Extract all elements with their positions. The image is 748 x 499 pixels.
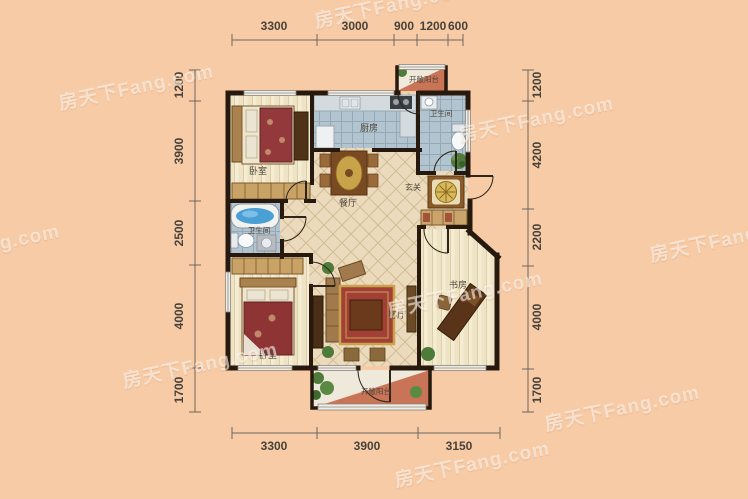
floor-plan: 3300 3000 900 1200 600 3300 3900 3150 12…	[0, 0, 748, 499]
plant	[451, 153, 467, 169]
washbasin	[421, 96, 437, 109]
foyer-medallion	[428, 176, 464, 208]
dim-bottom-3: 3150	[446, 439, 473, 453]
dim-top-5: 600	[448, 19, 468, 33]
room-label-balcony-top: 开敞阳台	[409, 74, 439, 84]
dim-left-1: 1200	[172, 71, 186, 98]
stove	[390, 96, 412, 109]
dim-top-3: 900	[394, 19, 414, 33]
bed	[232, 106, 294, 164]
balcony-railing	[399, 65, 445, 70]
dim-left-3: 2500	[172, 219, 186, 246]
dim-top-1: 3300	[261, 19, 288, 33]
dim-right-3: 2200	[530, 223, 544, 250]
coffee-table	[350, 300, 382, 330]
room-label-kitchen: 厨房	[360, 122, 378, 133]
toilet	[231, 233, 254, 248]
dim-right-5: 1700	[530, 376, 544, 403]
room-label-foyer: 玄关	[405, 182, 421, 192]
window	[318, 366, 356, 371]
room-label-bedroom-top: 卧室	[249, 165, 267, 176]
room-label-living: 客厅	[388, 309, 406, 320]
room-label-bathroom-mid: 卫生间	[248, 225, 271, 235]
dimension-chain-right: 1200 4200 2200 4000 1700	[522, 70, 544, 412]
window	[238, 366, 292, 371]
dim-left-2: 3900	[172, 137, 186, 164]
window	[328, 91, 394, 96]
dim-right-1: 1200	[530, 71, 544, 98]
fridge	[316, 126, 334, 148]
floorplan-page: 3300 3000 900 1200 600 3300 3900 3150 12…	[0, 0, 748, 499]
tall-cabinet	[294, 112, 308, 160]
bathtub	[231, 204, 279, 228]
balcony-railing	[318, 404, 426, 410]
room-label-bathroom-top: 卫生间	[430, 108, 453, 118]
window	[466, 110, 471, 152]
side-shelf	[407, 286, 416, 332]
window	[226, 272, 231, 312]
dim-left-4: 4000	[172, 302, 186, 329]
room-label-bedroom-bottom: 卧室	[259, 349, 277, 360]
dim-top-2: 3000	[342, 19, 369, 33]
shower-unit	[257, 235, 276, 251]
dim-right-2: 4200	[530, 141, 544, 168]
room-label-balcony-bottom: 开敞阳台	[361, 386, 391, 396]
dim-bottom-1: 3300	[261, 439, 288, 453]
tv-cabinet	[313, 296, 323, 348]
dim-left-5: 1700	[172, 376, 186, 403]
toilet	[452, 124, 466, 150]
sink	[340, 97, 360, 109]
entry-door	[470, 176, 493, 199]
dim-right-4: 4000	[530, 303, 544, 330]
hall-closet	[421, 210, 467, 225]
window	[434, 366, 486, 371]
dimension-chain-bottom: 3300 3900 3150	[232, 427, 500, 453]
dim-bottom-2: 3900	[354, 439, 381, 453]
dimension-chain-left: 1200 3900 2500 4000 1700	[172, 70, 201, 412]
room-label-study: 书房	[449, 279, 467, 290]
plant	[421, 347, 435, 361]
wardrobe	[232, 258, 303, 274]
window	[244, 91, 296, 96]
dimension-chain-top: 3300 3000 900 1200 600	[232, 19, 468, 46]
bed	[240, 278, 296, 355]
dim-top-4: 1200	[420, 19, 447, 33]
desk-chair	[436, 295, 452, 311]
room-label-dining: 餐厅	[339, 197, 357, 208]
wardrobe	[232, 183, 310, 199]
